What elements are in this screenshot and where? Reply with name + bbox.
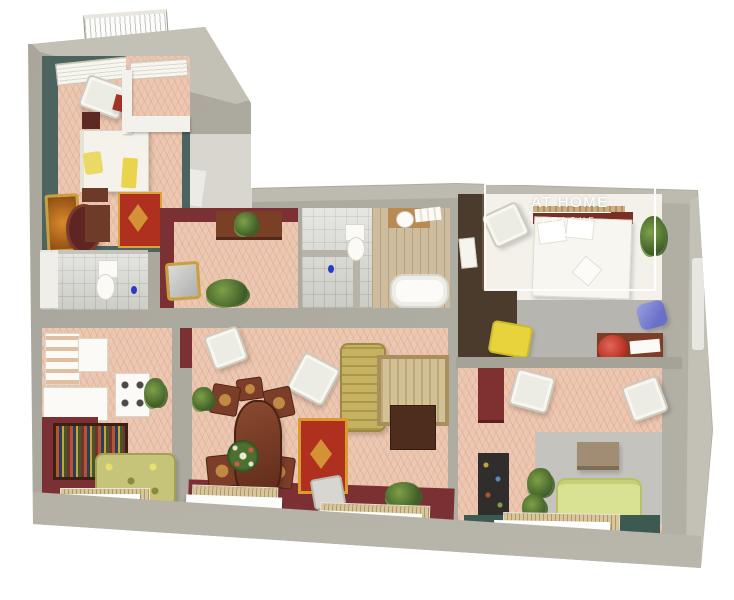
black-shelf-unit [478, 453, 509, 515]
toilet-bowl-2 [347, 237, 365, 261]
hall-plant [234, 212, 258, 236]
toilet-bowl [96, 274, 115, 300]
dresser-2 [85, 205, 110, 242]
watermark-tick-2 [581, 178, 584, 185]
window-blind-2 [129, 58, 188, 80]
living-dining-room [192, 328, 448, 524]
rug-medallion [128, 204, 148, 232]
living-armchair-1 [203, 325, 249, 371]
shelf-divider-h [126, 116, 190, 132]
lounge [458, 368, 662, 544]
bathroom-partition [58, 250, 148, 254]
rug-medallion-2 [310, 439, 332, 469]
kitchen-shelves [45, 333, 80, 385]
living-plant-left [192, 387, 214, 411]
door-leaf [40, 252, 58, 308]
drain-accent [328, 265, 334, 273]
yellow-pillow [83, 151, 104, 175]
red-oriental-rug [118, 192, 162, 248]
hallway [160, 208, 298, 308]
sink [396, 211, 414, 228]
ornate-mirror [165, 261, 202, 301]
towels [414, 207, 441, 223]
bathtub [390, 274, 449, 308]
tv-stand [390, 405, 436, 450]
yellow-throw [121, 158, 138, 189]
lounge-armchair-1 [508, 367, 556, 414]
living-armchair-2 [286, 351, 342, 407]
kitchen-living-wall [180, 328, 192, 368]
kitchen-counter [43, 387, 108, 421]
watermark-subtitle: PRAGUE [543, 216, 598, 225]
right-wall-niche [692, 258, 704, 350]
desk-paper [629, 339, 660, 355]
kitchen-cabinet [78, 338, 108, 372]
yellow-armchair [487, 320, 533, 360]
watermark-line [557, 234, 583, 236]
lounge-armchair-2 [621, 375, 670, 424]
building-walls [0, 0, 734, 600]
blue-chair [635, 299, 669, 331]
taupe-box [577, 442, 619, 470]
watermark-title: AT HOME [529, 194, 610, 213]
kitchen-plant [144, 378, 166, 408]
nightstand [82, 112, 100, 129]
wreath-centerpiece [227, 440, 259, 472]
wall-papers [458, 237, 477, 269]
hall-plant-2 [206, 279, 248, 307]
dresser [82, 188, 108, 202]
bathroom [302, 208, 450, 308]
floorplan-render: AT HOME PRAGUE [0, 0, 734, 600]
flush-button [131, 286, 137, 294]
watermark: AT HOME PRAGUE [484, 183, 656, 291]
kitchen [42, 328, 172, 506]
watermark-tick-1 [548, 178, 551, 185]
tower-bathroom [40, 250, 148, 310]
lounge-cabinet [478, 368, 504, 423]
